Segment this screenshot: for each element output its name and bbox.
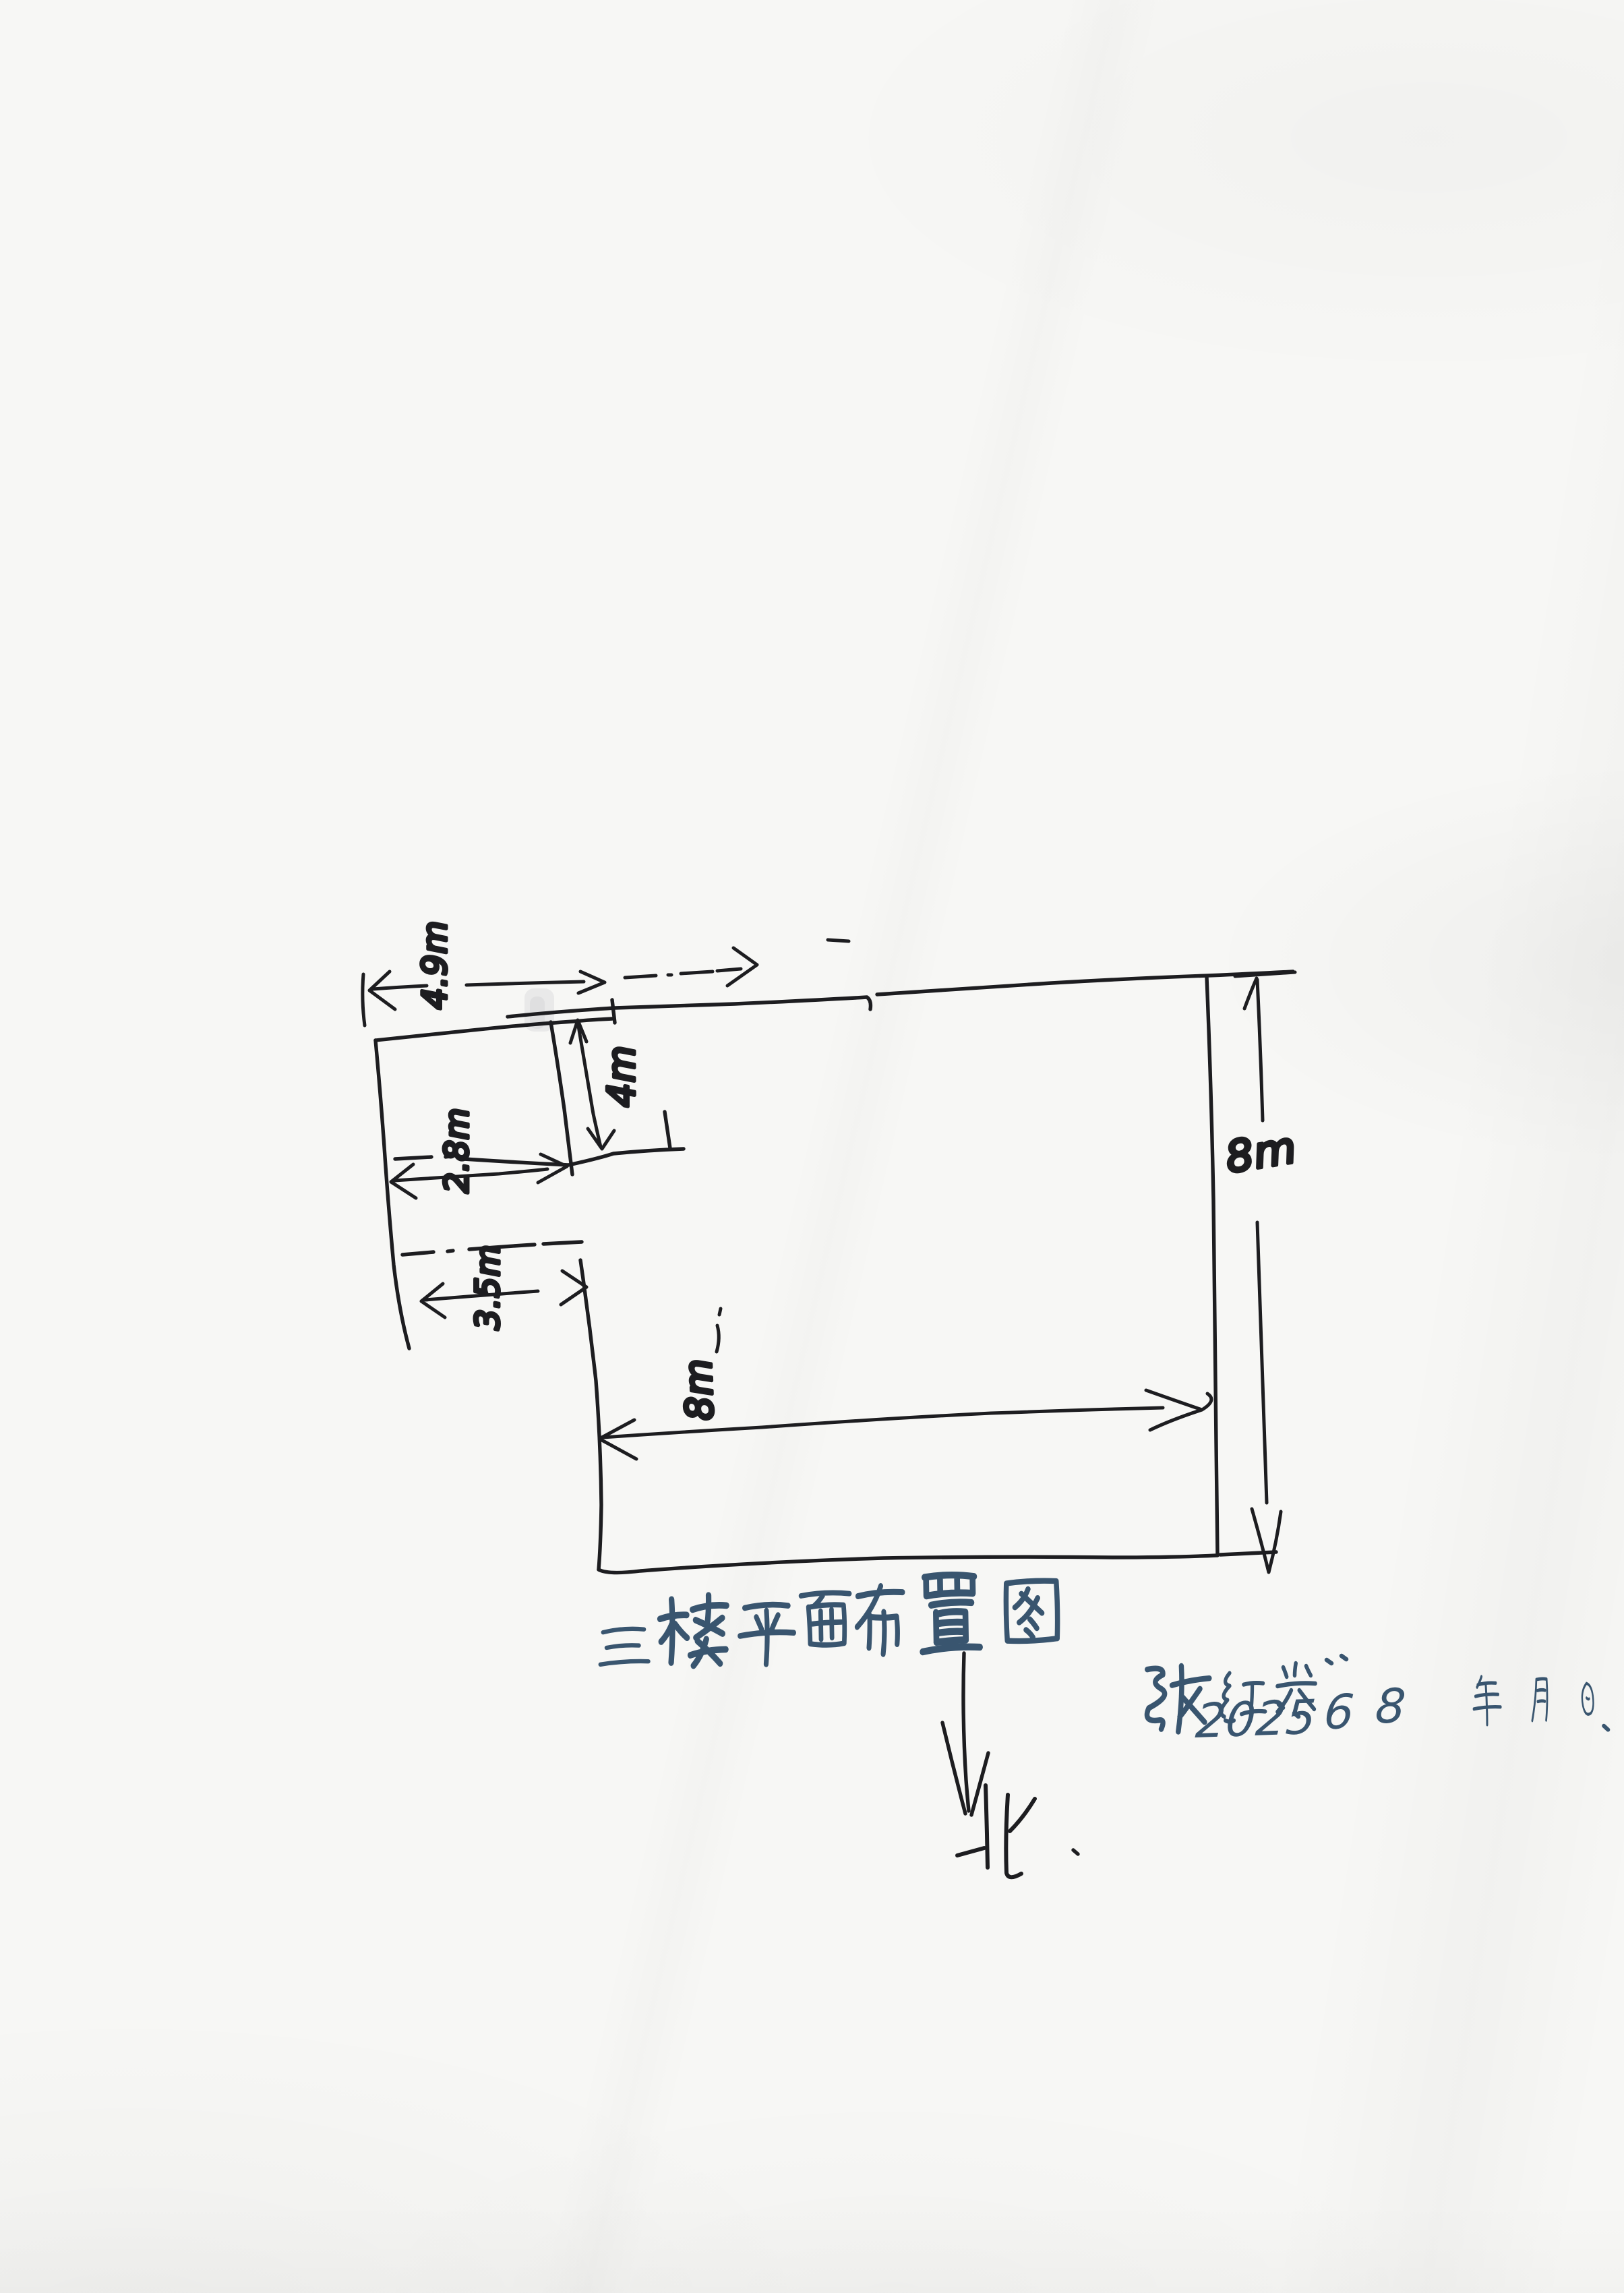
- dim-28-label: 2.8m: [438, 1107, 476, 1193]
- dimension-right-height: 8m: [1222, 972, 1300, 1572]
- date-year: 2025: [1194, 1690, 1318, 1749]
- date-char-nian: [1473, 1676, 1501, 1725]
- date-period: [1604, 1726, 1608, 1730]
- floor-plan-walls: [375, 972, 1293, 1573]
- dim-35-label: 3.5m: [469, 1244, 507, 1330]
- dim-8m-arrowhead-right: [1146, 1390, 1211, 1430]
- dimension-annotations: 4.9m 4m 2.8m 3.5m: [363, 920, 1300, 1572]
- title-char-san: [600, 1628, 649, 1664]
- dim-8m-flourish: [717, 1309, 721, 1352]
- wall-inner-bottom: [464, 1149, 684, 1165]
- title-handwriting: [599, 1573, 1058, 1667]
- dimension-small-room-depth: 4m: [570, 1020, 644, 1149]
- dimension-left-width-lower: 3.5m: [421, 1244, 587, 1330]
- dim-8m-right-label: 8m: [1222, 1123, 1300, 1183]
- dim-49-label: 4.9m: [415, 920, 454, 1009]
- title-char-lou: [659, 1595, 727, 1667]
- wall-top-main-left: [508, 997, 870, 1017]
- dim-8mr-line-upper: [1257, 980, 1263, 1121]
- floor-plan-sketch: 4.9m 4m 2.8m 3.5m: [0, 0, 1624, 2293]
- dim-8mr-line-lower: [1257, 1222, 1267, 1503]
- wall-left: [375, 1040, 409, 1348]
- ink-dot: [1073, 1850, 1078, 1854]
- north-arrow: [942, 1653, 1078, 1877]
- wall-right: [1207, 977, 1217, 1555]
- dim-49-dashes: [625, 969, 741, 978]
- title-char-mian: [801, 1592, 850, 1646]
- dimension-left-width-upper: 2.8m: [391, 1107, 567, 1198]
- dim-8mr-arrowhead-bottom: [1252, 1509, 1281, 1572]
- wall-top-main-right: [877, 972, 1293, 994]
- dim-49-line-b: [467, 982, 584, 985]
- wall-bottom-extension: [1220, 1552, 1276, 1555]
- wall-lower-left: [580, 1260, 601, 1570]
- dim-8m-bottom-label: 8m: [676, 1357, 722, 1421]
- north-arrow-line: [963, 1653, 969, 1811]
- date-char-ri: [1582, 1683, 1594, 1715]
- title-char-tu: [1006, 1580, 1058, 1641]
- title-char-ping: [740, 1605, 794, 1665]
- wall-inner-bottom-tick: [665, 1112, 670, 1148]
- dim-8m-arrowhead-left: [599, 1420, 636, 1459]
- stray-dash: [828, 940, 849, 941]
- date-day: 8: [1374, 1678, 1408, 1735]
- dimension-bottom-width: 8m: [599, 1309, 1211, 1459]
- title-char-zhi: [922, 1574, 980, 1652]
- wall-bottom: [599, 1555, 1217, 1573]
- dim-4m-label: 4m: [600, 1045, 644, 1107]
- date-char-yue: [1531, 1679, 1548, 1721]
- date-month: 6: [1322, 1684, 1356, 1741]
- wall-inner-vertical: [551, 1022, 572, 1174]
- title-char-bu: [856, 1586, 903, 1655]
- dim-49-arrowhead-right: [727, 948, 757, 986]
- dim-4m-arrowhead-bottom: [588, 1129, 614, 1149]
- dim-8mr-arrowhead-top: [1244, 978, 1257, 1009]
- scanned-paper-page: 三楼平面布置图 张红兴 2025年6月8日. 北: [0, 0, 1624, 2293]
- dim-49-serif: [363, 974, 365, 1025]
